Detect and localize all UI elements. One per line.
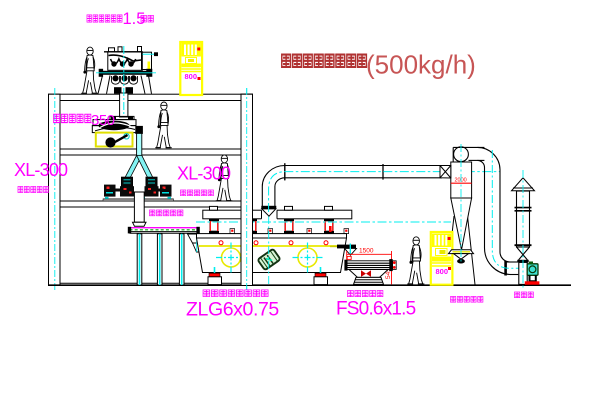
- svg-text:1500: 1500: [359, 248, 374, 255]
- svg-text:350: 350: [91, 112, 115, 129]
- svg-text:(500kg/h): (500kg/h): [366, 50, 476, 80]
- svg-text:XL-300: XL-300: [14, 160, 68, 180]
- svg-text:800: 800: [185, 72, 198, 81]
- svg-text:800: 800: [436, 267, 449, 276]
- svg-text:ZLG6x0.75: ZLG6x0.75: [186, 299, 279, 321]
- svg-text:XL-300: XL-300: [177, 164, 231, 184]
- svg-text:FS0.6x1.5: FS0.6x1.5: [336, 299, 416, 320]
